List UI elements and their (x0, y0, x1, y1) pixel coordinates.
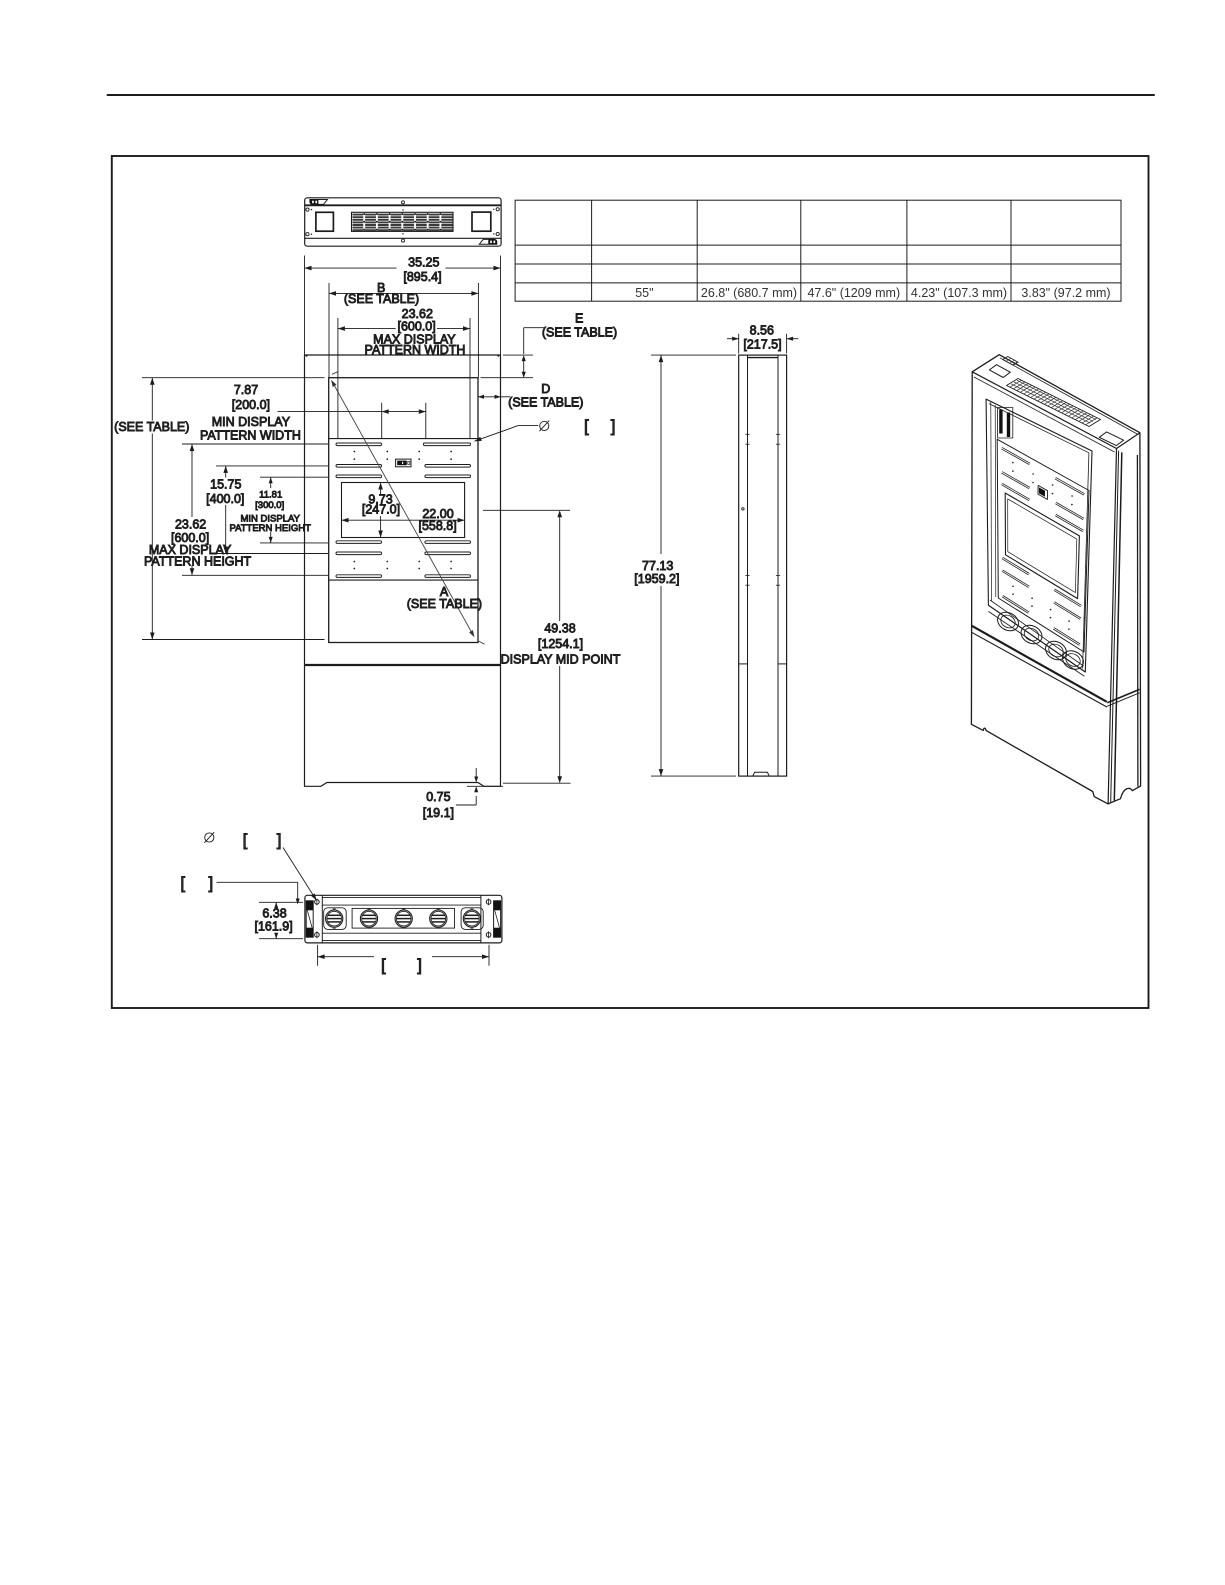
svg-text:26.8" (680.7 mm): 26.8" (680.7 mm) (701, 286, 797, 300)
svg-text:55": 55" (635, 286, 653, 300)
svg-text:[200.0]: [200.0] (232, 398, 270, 412)
svg-text:[600.0]: [600.0] (397, 320, 435, 334)
svg-text:[: [ (584, 417, 589, 436)
svg-text:15.75: 15.75 (210, 478, 241, 492)
svg-text:(SEE TABLE): (SEE TABLE) (508, 395, 583, 409)
svg-text:[217.5]: [217.5] (743, 338, 781, 352)
svg-text:[: [ (381, 956, 386, 975)
svg-text:[: [ (243, 831, 248, 850)
svg-text:]: ] (417, 956, 422, 975)
svg-text:(SEE TABLE): (SEE TABLE) (407, 597, 482, 611)
svg-text:77.13: 77.13 (642, 559, 673, 573)
svg-text:PATTERN WIDTH: PATTERN WIDTH (200, 429, 301, 443)
svg-text:]: ] (209, 874, 214, 893)
svg-text:DISPLAY MID POINT: DISPLAY MID POINT (501, 653, 621, 667)
svg-text:MIN DISPLAY: MIN DISPLAY (212, 415, 291, 429)
svg-text:4.23" (107.3 mm): 4.23" (107.3 mm) (911, 286, 1007, 300)
svg-text:[: [ (180, 874, 185, 893)
svg-text:8.56: 8.56 (750, 323, 774, 337)
svg-text:[1254.1]: [1254.1] (538, 637, 583, 651)
svg-text:(SEE TABLE): (SEE TABLE) (114, 420, 189, 434)
svg-text:23.62: 23.62 (175, 518, 206, 532)
svg-text:49.38: 49.38 (544, 622, 575, 636)
svg-text:6.38: 6.38 (262, 907, 286, 921)
svg-text:35.25: 35.25 (408, 256, 439, 270)
svg-text:[300.0]: [300.0] (255, 500, 284, 511)
svg-text:47.6" (1209 mm): 47.6" (1209 mm) (807, 286, 900, 300)
svg-text:PATTERN HEIGHT: PATTERN HEIGHT (229, 523, 311, 534)
svg-text:[161.9]: [161.9] (254, 920, 292, 934)
svg-text:]: ] (611, 417, 616, 436)
svg-text:11.81: 11.81 (259, 490, 282, 501)
svg-text:7.87: 7.87 (234, 383, 258, 397)
svg-text:E: E (575, 312, 583, 326)
svg-text:[895.4]: [895.4] (403, 270, 441, 284)
svg-text:[558.8]: [558.8] (418, 519, 456, 533)
svg-text:D: D (541, 382, 550, 396)
svg-text:[400.0]: [400.0] (206, 492, 244, 506)
svg-text:]: ] (277, 831, 282, 850)
svg-text:PATTERN WIDTH: PATTERN WIDTH (365, 343, 466, 357)
svg-text:[19.1]: [19.1] (423, 806, 454, 820)
svg-text:0.75: 0.75 (426, 790, 450, 804)
svg-text:[1959.2]: [1959.2] (634, 572, 679, 586)
svg-text:PATTERN HEIGHT: PATTERN HEIGHT (144, 554, 252, 568)
svg-text:(SEE TABLE): (SEE TABLE) (542, 326, 617, 340)
svg-text:3.83" (97.2 mm): 3.83" (97.2 mm) (1021, 286, 1110, 300)
svg-text:[247.0]: [247.0] (362, 503, 400, 517)
svg-text:(SEE TABLE): (SEE TABLE) (344, 292, 419, 306)
